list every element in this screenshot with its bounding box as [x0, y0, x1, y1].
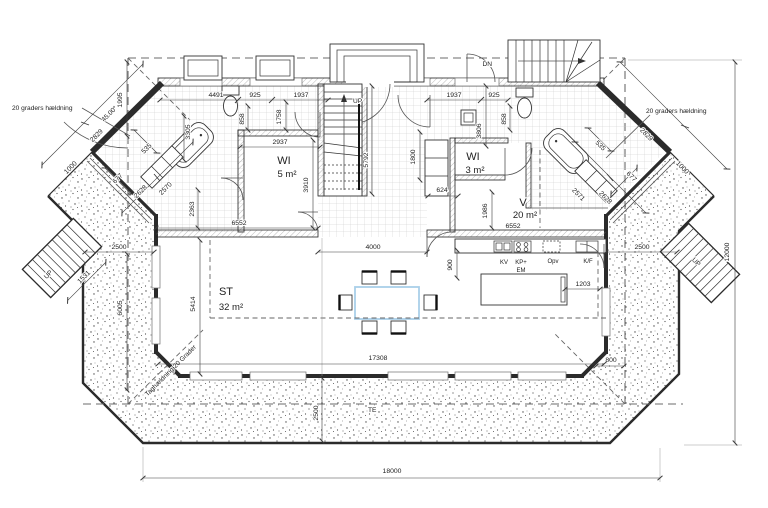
chair	[391, 321, 406, 334]
kitchen-counter	[455, 239, 606, 253]
stair-up-label: UP	[353, 98, 363, 105]
dim-label: 5414	[190, 296, 197, 311]
dim-label: 4491	[208, 92, 223, 99]
dim-label: 5792	[363, 152, 370, 167]
dim-label: 3910	[303, 177, 310, 192]
slope-annotation-right: 20 graders hældning	[646, 108, 707, 115]
chair	[391, 271, 406, 284]
room-name-st: ST	[219, 286, 233, 298]
dim-label: 1203	[575, 281, 590, 288]
exterior-stair-top: DN	[467, 40, 600, 82]
wi3-stool	[461, 110, 476, 125]
dim-label: 17308	[369, 355, 388, 362]
center-stair: UP	[324, 84, 363, 196]
label-kv: KV	[500, 260, 508, 266]
room-area-v: 20 m²	[513, 210, 537, 221]
dim-label: 1758	[276, 109, 283, 124]
dim-label: 925	[488, 92, 500, 99]
room-name-v: V	[519, 197, 527, 209]
dim-label: 6552	[505, 223, 520, 230]
chair	[339, 295, 352, 310]
chair	[362, 321, 377, 334]
dim-label: 1995	[117, 92, 124, 107]
room-area-wi5: 5 m²	[278, 169, 297, 180]
label-em: EM	[517, 268, 526, 274]
dim-label: 858	[501, 113, 508, 125]
dim-label: 3806	[476, 123, 483, 138]
dim-label: 3305	[185, 124, 192, 139]
dim-label: 12000	[724, 242, 731, 261]
dim-label: 2500	[313, 405, 320, 420]
dining-set[interactable]	[339, 271, 437, 334]
label-kp: KP+	[515, 260, 527, 266]
room-area-wi3: 3 m²	[466, 165, 485, 176]
dim-label: 624	[436, 187, 448, 194]
floor-plan-canvas: DN UP UP 1531 UP	[0, 0, 768, 508]
right-toilet	[516, 88, 533, 118]
dining-table-selected[interactable]	[355, 287, 419, 319]
dim-label: 6552	[231, 220, 246, 227]
dim-label: 1937	[446, 92, 461, 99]
dim-label: 858	[239, 113, 246, 125]
dim-label: 2500	[634, 244, 649, 251]
dim-label: 4000	[365, 244, 380, 251]
roof-window	[184, 56, 222, 80]
room-area-st: 32 m²	[219, 302, 243, 313]
dim-label: 2937	[272, 139, 287, 146]
dim-label: 2363	[189, 201, 196, 216]
chair	[424, 295, 437, 310]
dim-label: 2500	[111, 244, 126, 251]
te-label: TE	[368, 407, 377, 414]
floor-plan-page: DN UP UP 1531 UP	[0, 0, 768, 508]
stair-dn-label: DN	[482, 61, 492, 68]
dim-label: 1986	[482, 203, 489, 218]
roof-window	[256, 56, 294, 80]
label-opv: Opv	[547, 259, 558, 265]
slope-annotation-left: 20 graders hældning	[12, 105, 73, 112]
dim-label: 1800	[410, 149, 417, 164]
dim-label: 900	[447, 259, 454, 271]
kitchen-labels: KV KP+ EM Opv K/F	[500, 259, 593, 274]
dim-label: 925	[249, 92, 261, 99]
room-name-wi5: WI	[277, 155, 290, 167]
dim-label: 1937	[293, 92, 308, 99]
room-name-wi3: WI	[466, 151, 479, 163]
dim-label: 6005	[117, 300, 124, 315]
chair	[362, 271, 377, 284]
dim-label: 18000	[383, 468, 402, 475]
kitchen-island	[481, 274, 567, 305]
label-kf: K/F	[583, 259, 593, 265]
dim-label: 800	[605, 357, 617, 364]
